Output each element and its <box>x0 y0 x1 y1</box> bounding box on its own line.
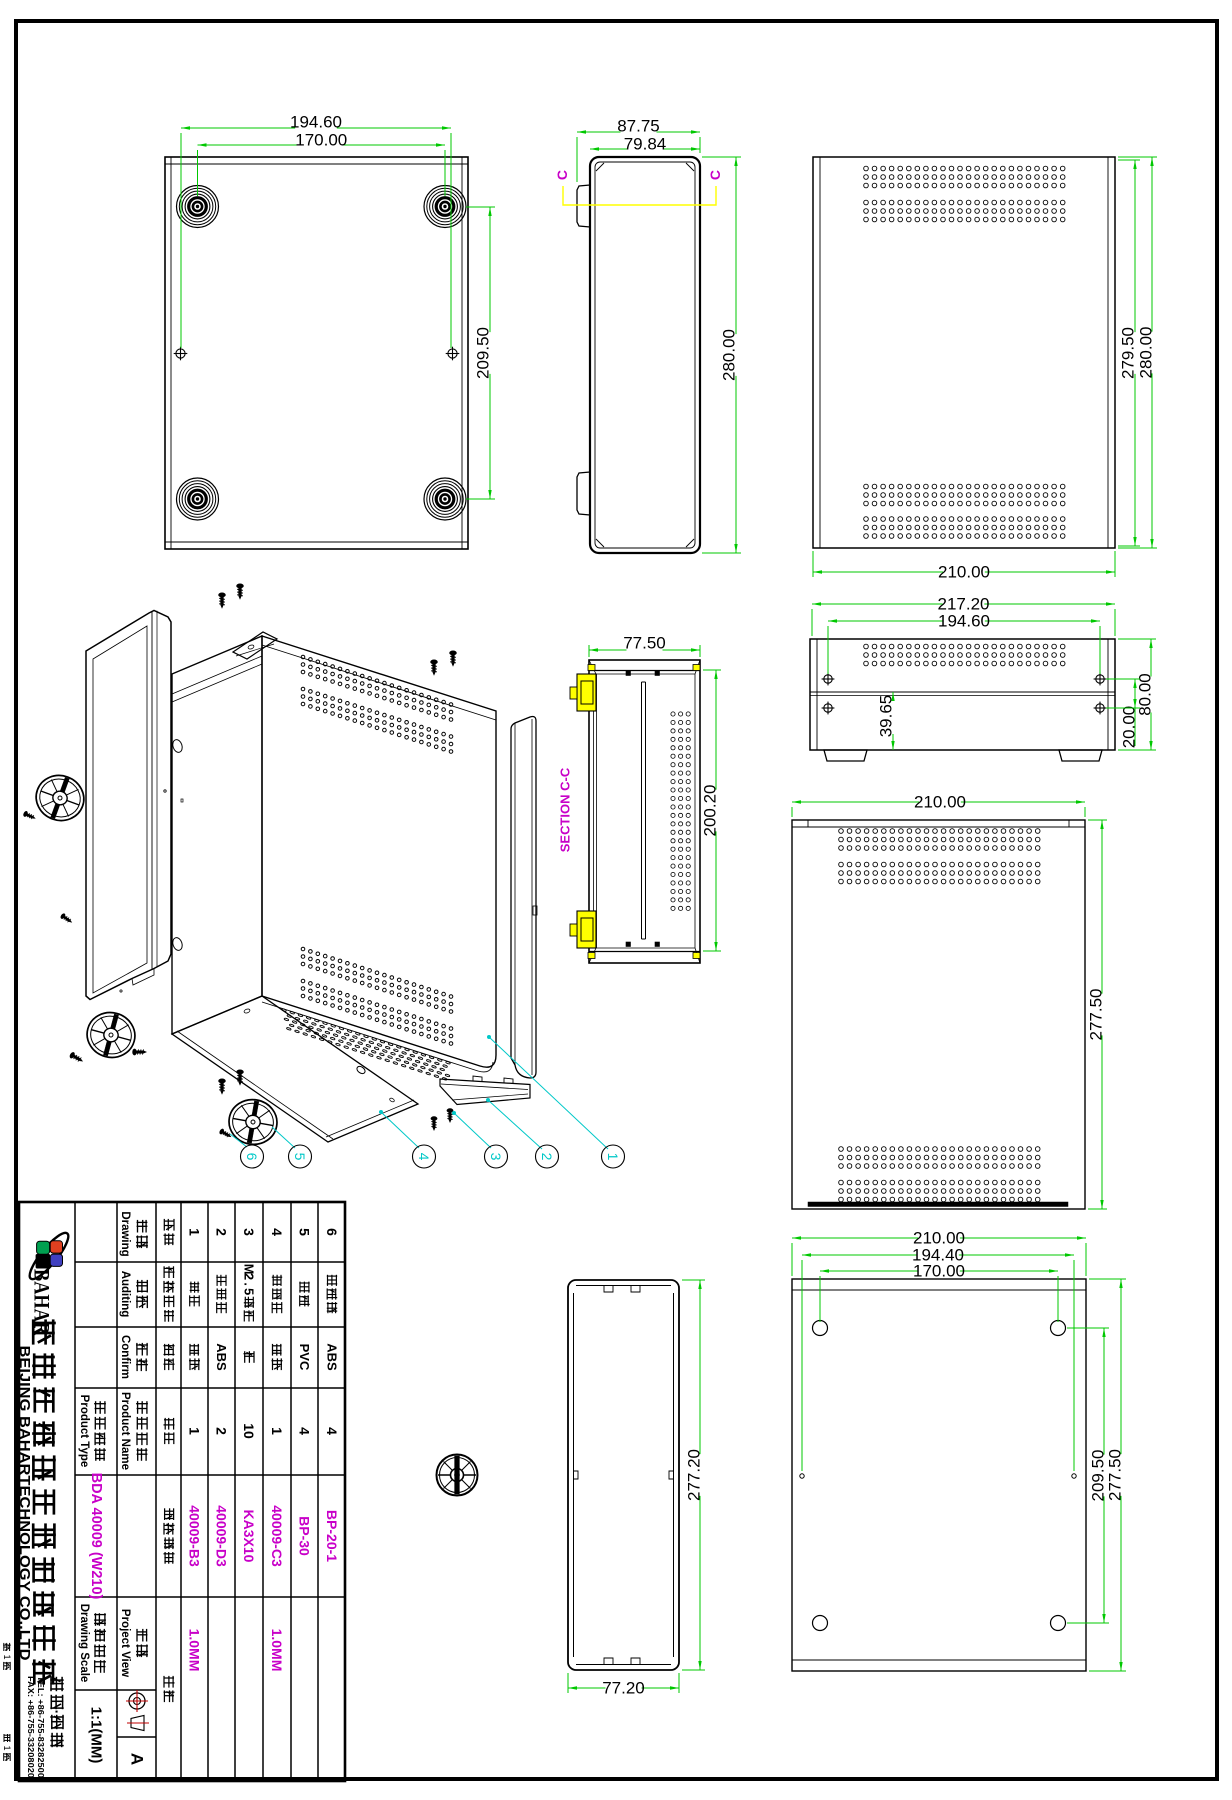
svg-text:2: 2 <box>214 1427 230 1435</box>
svg-text:40009-D3: 40009-D3 <box>214 1505 230 1567</box>
svg-text:Project View: Project View <box>119 1609 131 1677</box>
svg-text:200.20: 200.20 <box>701 785 720 837</box>
svg-text:4: 4 <box>269 1228 285 1236</box>
svg-text:4: 4 <box>324 1427 340 1435</box>
svg-text:6: 6 <box>244 1153 260 1161</box>
svg-text:KA3X10: KA3X10 <box>241 1510 257 1563</box>
svg-text:6: 6 <box>324 1228 340 1236</box>
svg-text:87.75: 87.75 <box>617 117 660 136</box>
svg-text:1: 1 <box>2 1654 12 1659</box>
svg-text:FAX: +86-755-33208020: FAX: +86-755-33208020 <box>26 1676 36 1778</box>
svg-text:194.60: 194.60 <box>290 113 342 132</box>
svg-text:194.60: 194.60 <box>938 612 990 631</box>
svg-text:280.00: 280.00 <box>720 329 739 381</box>
svg-text:.: . <box>242 1282 257 1286</box>
svg-text:210.00: 210.00 <box>914 793 966 812</box>
svg-text:277.50: 277.50 <box>1087 989 1106 1041</box>
svg-text:BP-20-1: BP-20-1 <box>324 1510 340 1562</box>
svg-text:ABS: ABS <box>214 1343 229 1371</box>
svg-text:A: A <box>128 1753 147 1765</box>
svg-text:Auditing: Auditing <box>119 1271 131 1318</box>
svg-text:170.00: 170.00 <box>913 1262 965 1281</box>
svg-text:2: 2 <box>539 1153 555 1161</box>
svg-text:Product Name: Product Name <box>119 1392 131 1470</box>
svg-text:SECTION C-C: SECTION C-C <box>558 767 573 852</box>
svg-text:279.50: 279.50 <box>1119 327 1138 379</box>
svg-text:C: C <box>707 170 723 180</box>
svg-text:1: 1 <box>2 1745 12 1750</box>
svg-text:40009-B3: 40009-B3 <box>187 1505 203 1567</box>
svg-text:·: · <box>49 1710 65 1715</box>
svg-text:1.0MM: 1.0MM <box>269 1629 285 1672</box>
svg-text:TEL: +86-755-83282500: TEL: +86-755-83282500 <box>36 1676 46 1778</box>
svg-text:5: 5 <box>242 1288 257 1295</box>
svg-text:209.50: 209.50 <box>474 327 493 379</box>
svg-text:4: 4 <box>416 1153 432 1161</box>
svg-text:77.20: 77.20 <box>602 1679 645 1698</box>
svg-text:3: 3 <box>488 1153 504 1161</box>
svg-text:1:1(MM): 1:1(MM) <box>88 1707 105 1764</box>
svg-text:2: 2 <box>214 1228 230 1236</box>
svg-text:PVC: PVC <box>297 1344 312 1371</box>
svg-text:5: 5 <box>292 1153 308 1161</box>
svg-text:1: 1 <box>605 1153 621 1161</box>
svg-text:Confirm: Confirm <box>119 1335 131 1379</box>
svg-text:BEIJING BAHARTECHNOLOGY CO.,LT: BEIJING BAHARTECHNOLOGY CO.,LTD <box>16 1346 33 1661</box>
svg-text:77.50: 77.50 <box>623 634 666 653</box>
svg-text:5: 5 <box>297 1228 313 1236</box>
svg-text:39.65: 39.65 <box>877 695 896 738</box>
svg-text:1: 1 <box>269 1427 285 1435</box>
svg-text:10: 10 <box>241 1423 257 1439</box>
svg-text:Product Type: Product Type <box>78 1395 90 1468</box>
svg-text:277.20: 277.20 <box>685 1449 704 1501</box>
svg-text:3: 3 <box>241 1228 257 1236</box>
svg-text:210.00: 210.00 <box>938 563 990 582</box>
svg-text:277.50: 277.50 <box>1106 1449 1125 1501</box>
svg-text:2: 2 <box>242 1273 257 1280</box>
svg-text:ABS: ABS <box>325 1343 340 1371</box>
svg-text:170.00: 170.00 <box>295 131 347 150</box>
svg-text:1: 1 <box>187 1228 203 1236</box>
svg-text:C: C <box>554 170 570 180</box>
svg-text:20.00: 20.00 <box>1120 706 1139 749</box>
svg-text:79.84: 79.84 <box>624 135 667 154</box>
svg-text:BDA 40009 (W210): BDA 40009 (W210) <box>88 1473 104 1600</box>
svg-text:280.00: 280.00 <box>1137 327 1156 379</box>
svg-text:Drawing Scale: Drawing Scale <box>78 1604 90 1683</box>
svg-text:Drawing: Drawing <box>119 1211 131 1256</box>
svg-text:40009-C3: 40009-C3 <box>269 1505 285 1567</box>
svg-text:4: 4 <box>297 1427 313 1435</box>
svg-text:1: 1 <box>187 1427 203 1435</box>
svg-text:BP-30: BP-30 <box>297 1516 313 1556</box>
svg-text:1.0MM: 1.0MM <box>187 1629 203 1672</box>
